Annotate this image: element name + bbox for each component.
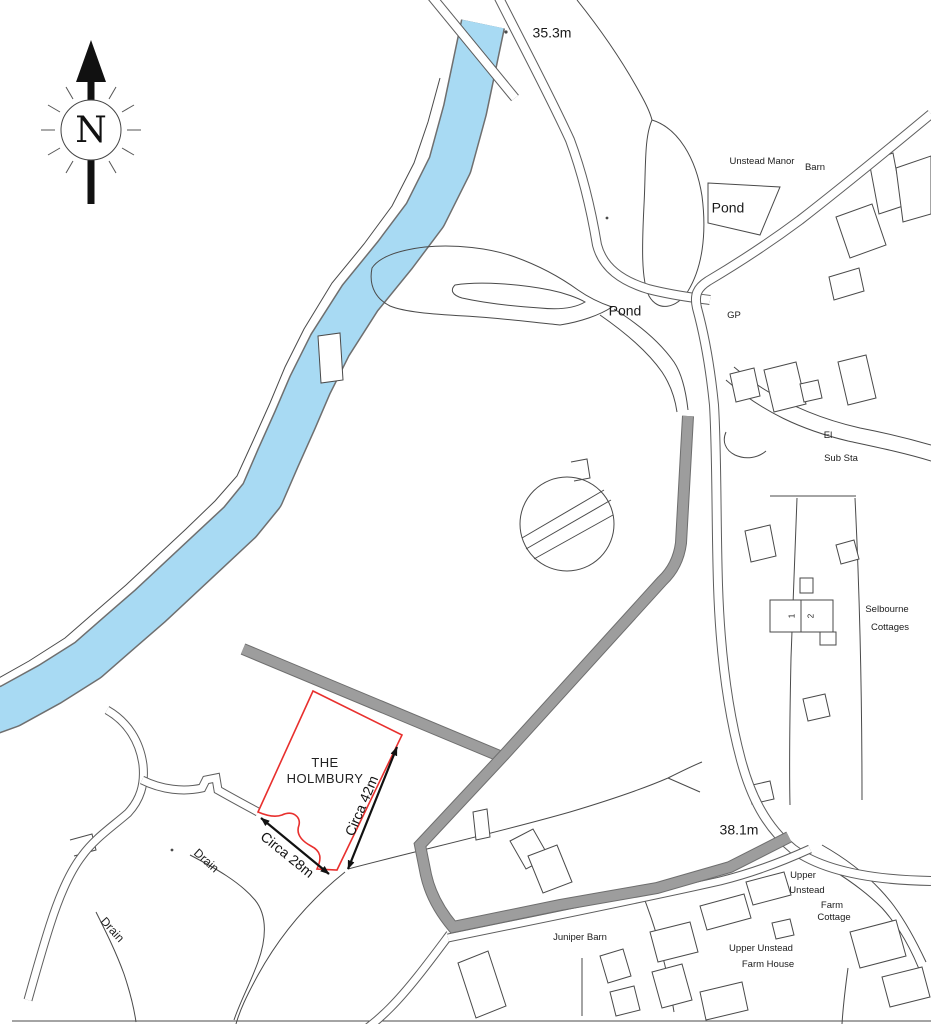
road-main-ne-to-s: [696, 114, 931, 881]
pond-inner: [452, 283, 585, 309]
label-cottage-1: 1: [789, 614, 798, 618]
track-main-fill: [420, 416, 789, 927]
label-upper: Upper: [790, 871, 816, 881]
label-barn: Barn: [805, 163, 825, 173]
label-pond-centre: Pond: [609, 303, 642, 318]
drain-line-east: [190, 855, 264, 1020]
path-to-site: [142, 778, 258, 812]
label-unstead: Unstead: [789, 886, 824, 896]
stream-2: [600, 315, 677, 412]
label-unstead-manor: Unstead Manor: [730, 157, 795, 167]
teardrop-enclosure: [643, 120, 704, 306]
site-name-line2: HOLMBURY: [287, 771, 364, 787]
label-sub-sta: Sub Sta: [824, 454, 858, 464]
site-name-line1: THE: [287, 755, 364, 771]
label-pond-ne: Pond: [712, 200, 745, 215]
label-farm-house: Farm House: [742, 960, 794, 970]
label-juniper-barn: Juniper Barn: [553, 933, 607, 943]
stream: [614, 309, 688, 410]
lane-southwest: [362, 934, 450, 1024]
circular-feature: [520, 459, 614, 571]
label-el: El: [824, 431, 832, 441]
track-main: [420, 416, 789, 927]
label-upper-unstead-fh: Upper Unstead: [729, 944, 793, 954]
north-letter: N: [75, 111, 107, 151]
site-location-plan: N 35.3m 38.1m Unstead Manor Barn Pond Po…: [0, 0, 931, 1024]
road-from-bridge-to-gp: [496, 0, 710, 300]
site-name: THE HOLMBURY: [287, 755, 364, 787]
label-cottages: Cottages: [871, 623, 909, 633]
spot-height-north: 35.3m: [533, 25, 572, 40]
label-cottage-2: 2: [808, 614, 817, 618]
label-gp: GP: [727, 311, 741, 321]
north-arrowhead: [76, 40, 106, 82]
corridor-river-bend: [28, 710, 143, 1000]
label-cottage: Cottage: [817, 913, 850, 923]
riverside-path: [0, 78, 440, 683]
track-branch-fill: [243, 649, 502, 757]
label-selbourne: Selbourne: [865, 605, 908, 615]
label-farm: Farm: [821, 901, 843, 911]
spot-height-south: 38.1m: [720, 822, 759, 837]
boundary-top-centre: [577, 0, 652, 120]
